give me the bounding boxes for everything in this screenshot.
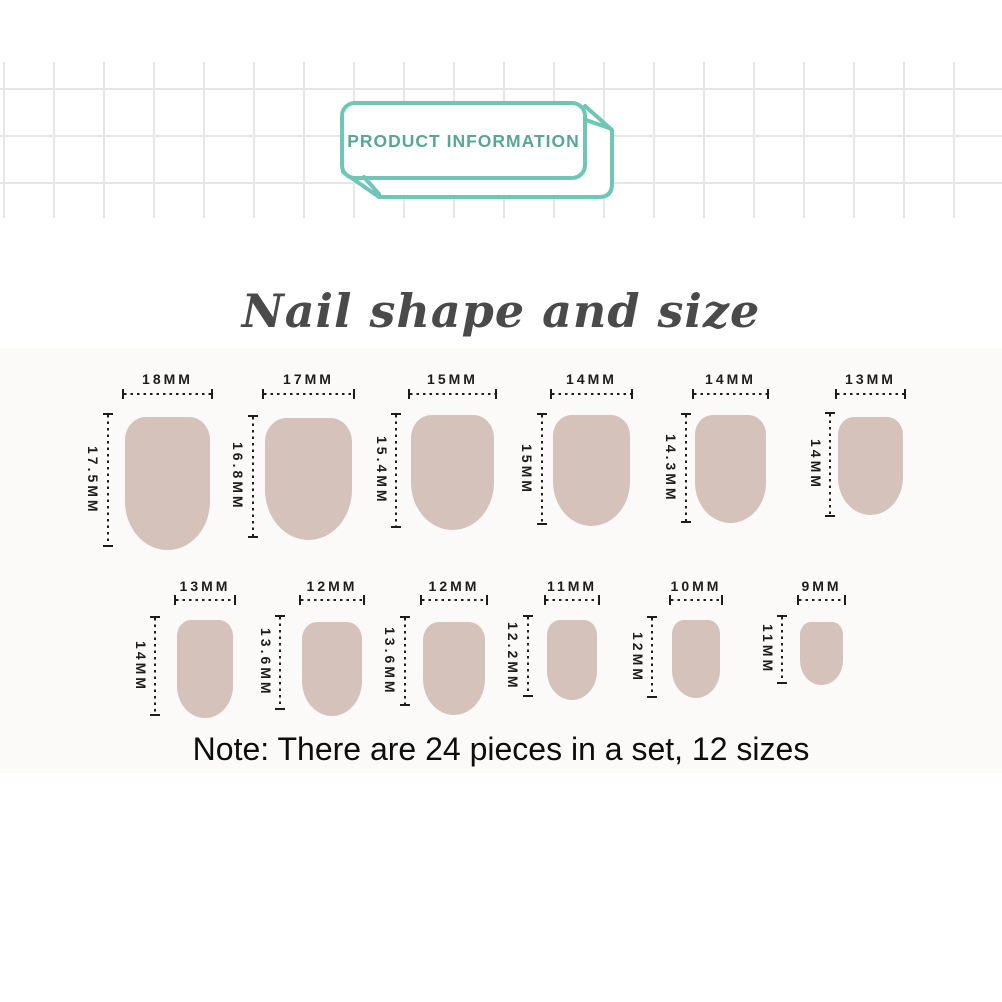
width-label: 14MM [544, 371, 640, 387]
height-label-text: 14MM [133, 641, 149, 692]
end-tick [495, 389, 497, 399]
height-label: 15MM [516, 413, 538, 525]
end-tick [420, 595, 422, 605]
end-tick [681, 413, 691, 415]
width-label: 12MM [406, 578, 502, 594]
dotted-line [799, 599, 844, 601]
end-tick [844, 595, 846, 605]
dotted-line [410, 393, 495, 395]
width-label: 14MM [683, 371, 779, 387]
width-dimension-line [408, 389, 497, 399]
height-label: 13.6MM [255, 615, 277, 710]
height-label: 14MM [805, 412, 827, 517]
end-tick [523, 695, 533, 697]
dotted-line [781, 617, 783, 682]
dotted-line [124, 393, 211, 395]
height-label-text: 13.6MM [258, 628, 274, 697]
dotted-line [404, 618, 406, 704]
end-tick [234, 595, 236, 605]
end-tick [537, 413, 547, 415]
height-label: 12MM [627, 616, 649, 698]
dotted-line [541, 415, 543, 523]
height-label-text: 12.2MM [505, 622, 521, 691]
end-tick [721, 595, 723, 605]
width-label: 13MM [157, 578, 253, 594]
dotted-line [395, 415, 397, 526]
end-tick [299, 595, 301, 605]
end-tick [211, 389, 213, 399]
end-tick [174, 595, 176, 605]
width-dimension-line [544, 595, 600, 605]
end-tick [904, 389, 906, 399]
height-dimension-line [537, 413, 547, 525]
width-dimension-line [550, 389, 633, 399]
end-tick [248, 536, 258, 538]
end-tick [835, 389, 837, 399]
nail-shape [838, 417, 903, 515]
badge-label: PRODUCT INFORMATION [342, 126, 585, 156]
height-label: 13.6MM [379, 616, 401, 706]
nail-shape [547, 620, 597, 700]
end-tick [363, 595, 365, 605]
height-label-text: 11MM [760, 624, 776, 674]
height-label-text: 15MM [519, 444, 535, 495]
width-dimension-line [174, 595, 236, 605]
end-tick [550, 389, 552, 399]
dotted-line [176, 599, 234, 601]
nail-shape [800, 622, 843, 685]
nail-shape [177, 620, 233, 718]
dotted-line [422, 599, 486, 601]
width-dimension-line [835, 389, 906, 399]
width-dimension-line [262, 389, 355, 399]
end-tick [681, 521, 691, 523]
end-tick [692, 389, 694, 399]
end-tick [408, 389, 410, 399]
end-tick [103, 413, 113, 415]
height-dimension-line [103, 413, 113, 547]
width-dimension-line [669, 595, 723, 605]
nail-shape [553, 415, 630, 526]
height-label: 16.8MM [227, 415, 249, 538]
width-label: 9MM [774, 578, 870, 594]
height-label-text: 13.6MM [382, 627, 398, 696]
height-label: 12.2MM [502, 615, 524, 697]
nail-shape [695, 415, 766, 523]
height-label-text: 14MM [808, 439, 824, 490]
height-dimension-line [681, 413, 691, 523]
height-dimension-line [400, 616, 410, 706]
width-label: 12MM [284, 578, 380, 594]
end-tick [103, 545, 113, 547]
height-label: 15.4MM [371, 413, 393, 528]
end-tick [523, 615, 533, 617]
dotted-line [527, 617, 529, 695]
dotted-line [154, 618, 156, 714]
dotted-line [694, 393, 767, 395]
end-tick [400, 704, 410, 706]
nail-shape [672, 620, 720, 698]
nail-shape [125, 417, 210, 550]
dotted-line [651, 618, 653, 696]
height-label-text: 15.4MM [374, 436, 390, 505]
dotted-line [279, 617, 281, 708]
end-tick [262, 389, 264, 399]
end-tick [537, 523, 547, 525]
end-tick [486, 595, 488, 605]
width-dimension-line [122, 389, 213, 399]
dotted-line [264, 393, 353, 395]
nail-shape [302, 622, 362, 716]
height-label-text: 16.8MM [230, 442, 246, 511]
height-label: 14MM [130, 616, 152, 716]
nail-shape [423, 622, 485, 715]
end-tick [122, 389, 124, 399]
end-tick [669, 595, 671, 605]
note-text: Note: There are 24 pieces in a set, 12 s… [0, 731, 1002, 768]
height-label-text: 14.3MM [663, 434, 679, 503]
end-tick [400, 616, 410, 618]
width-dimension-line [797, 595, 846, 605]
page-title: Nail shape and size [0, 284, 1002, 338]
end-tick [767, 389, 769, 399]
height-dimension-line [248, 415, 258, 538]
height-label-text: 12MM [630, 632, 646, 683]
dotted-line [301, 599, 363, 601]
end-tick [631, 389, 633, 399]
end-tick [248, 415, 258, 417]
height-label-text: 17.5MM [85, 446, 101, 515]
height-label: 17.5MM [82, 413, 104, 547]
product-infographic: PRODUCT INFORMATION Nail shape and size … [0, 0, 1002, 1002]
end-tick [353, 389, 355, 399]
dotted-line [671, 599, 721, 601]
dotted-line [552, 393, 631, 395]
height-dimension-line [523, 615, 533, 697]
end-tick [544, 595, 546, 605]
width-dimension-line [420, 595, 488, 605]
width-label: 10MM [648, 578, 744, 594]
width-label: 18MM [120, 371, 216, 387]
width-label: 11MM [524, 578, 620, 594]
height-label: 14.3MM [660, 413, 682, 523]
dotted-line [252, 417, 254, 536]
width-label: 13MM [823, 371, 919, 387]
dotted-line [107, 415, 109, 545]
nail-shape [265, 418, 352, 540]
end-tick [598, 595, 600, 605]
dotted-line [829, 414, 831, 515]
end-tick [797, 595, 799, 605]
dotted-line [837, 393, 904, 395]
dotted-line [685, 415, 687, 521]
nail-shape [411, 415, 494, 530]
dotted-line [546, 599, 598, 601]
width-label: 17MM [261, 371, 357, 387]
width-dimension-line [299, 595, 365, 605]
height-label: 11MM [757, 615, 779, 684]
width-dimension-line [692, 389, 769, 399]
width-label: 15MM [405, 371, 501, 387]
